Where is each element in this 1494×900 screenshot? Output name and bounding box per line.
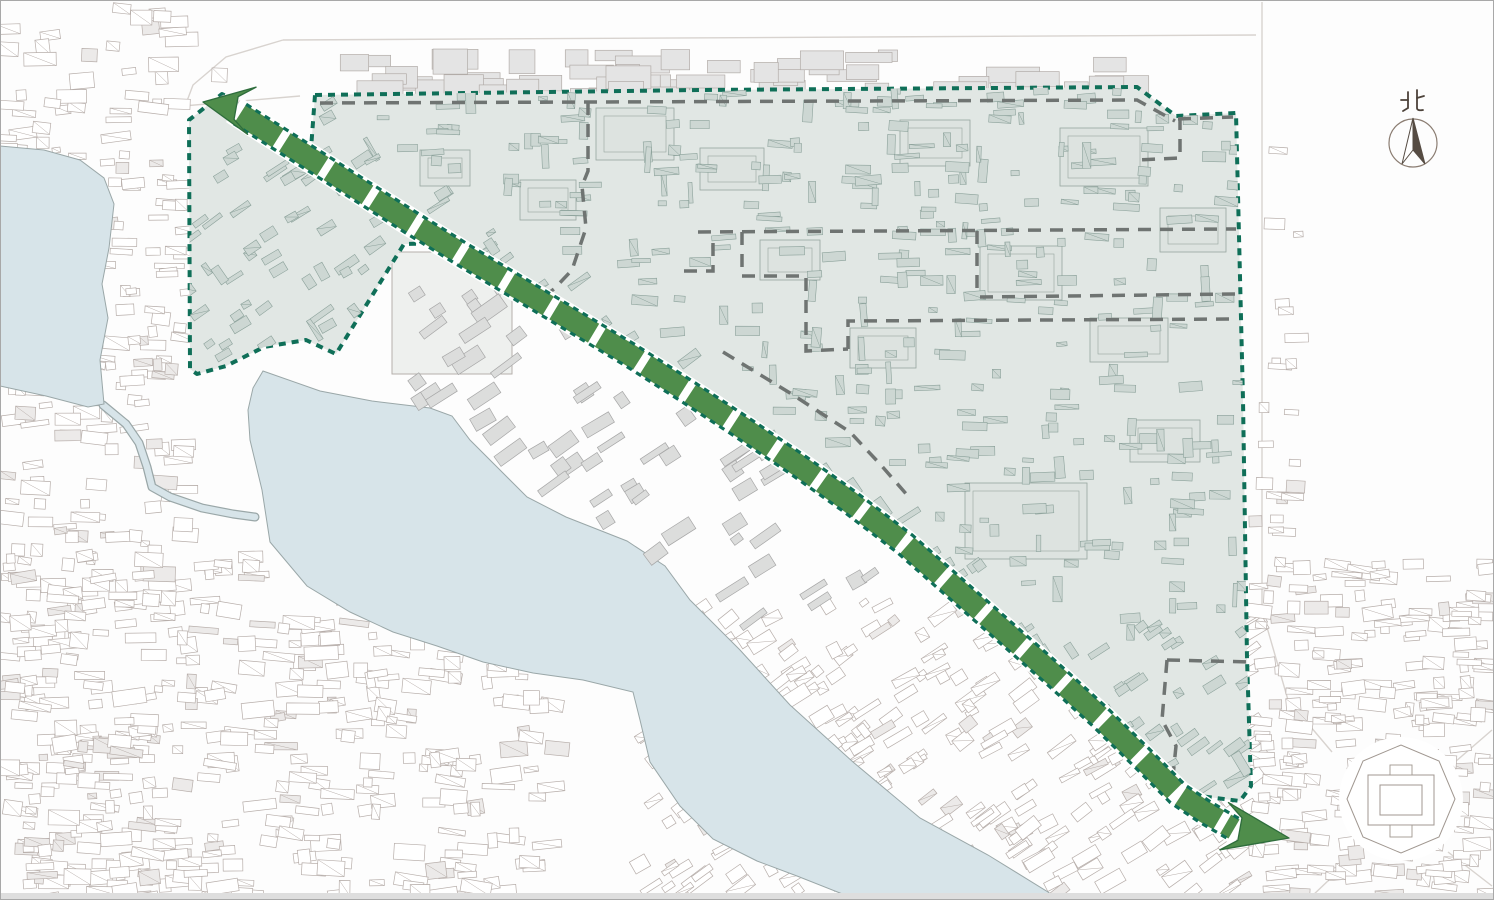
north-compass — [1389, 90, 1437, 167]
north-label-glyph — [1401, 90, 1424, 111]
octagon-plaza — [1339, 737, 1463, 861]
conservation-plan-map — [0, 0, 1494, 900]
map-canvas — [0, 0, 1494, 900]
